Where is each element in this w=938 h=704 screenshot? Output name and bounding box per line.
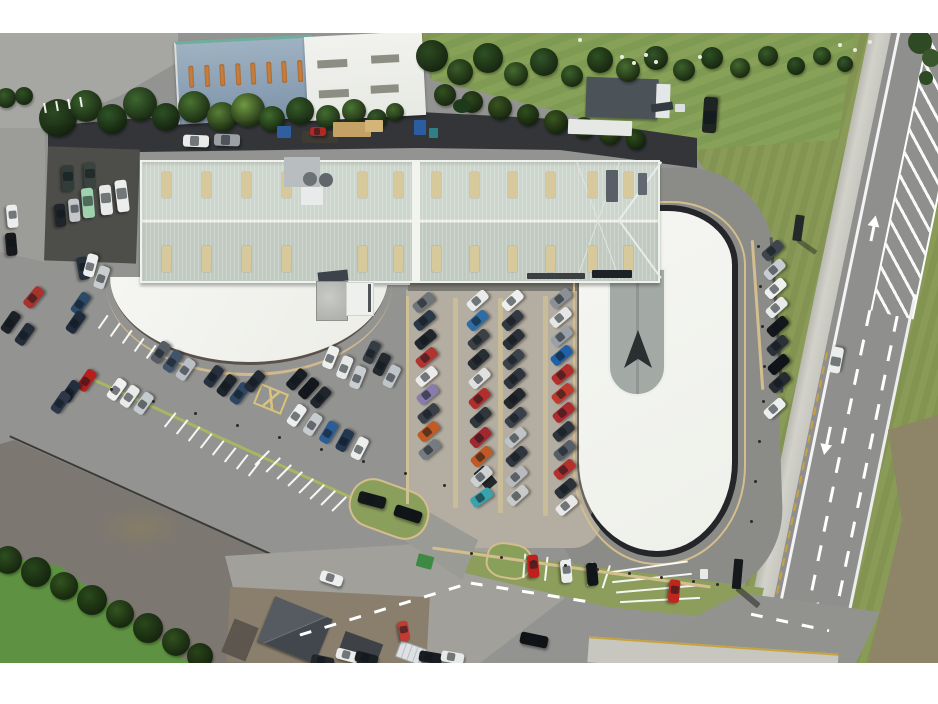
bollard	[194, 412, 197, 415]
bollard	[443, 484, 446, 487]
bollard	[564, 564, 567, 567]
dealership-aerial-photo	[0, 0, 938, 704]
bollard	[757, 245, 760, 248]
bollard	[628, 572, 631, 575]
bollard	[761, 325, 764, 328]
bollard	[660, 576, 663, 579]
bollard	[110, 388, 113, 391]
bollard	[404, 472, 407, 475]
aerial-photo-stage	[0, 0, 938, 704]
bollard	[758, 440, 761, 443]
bollard	[532, 560, 535, 563]
bollard	[362, 460, 365, 463]
bollard	[236, 424, 239, 427]
bollard	[152, 400, 155, 403]
bollard	[278, 436, 281, 439]
bollard	[754, 480, 757, 483]
bollards-layer	[0, 0, 938, 704]
bollard	[716, 583, 719, 586]
bollard	[759, 285, 762, 288]
bollard	[763, 365, 766, 368]
bollard	[762, 400, 765, 403]
bollard	[692, 580, 695, 583]
bollard	[470, 552, 473, 555]
bollard	[320, 448, 323, 451]
letterbox-bottom	[0, 663, 938, 704]
bollard	[500, 556, 503, 559]
bollard	[750, 520, 753, 523]
letterbox-top	[0, 0, 938, 33]
bollard	[596, 568, 599, 571]
